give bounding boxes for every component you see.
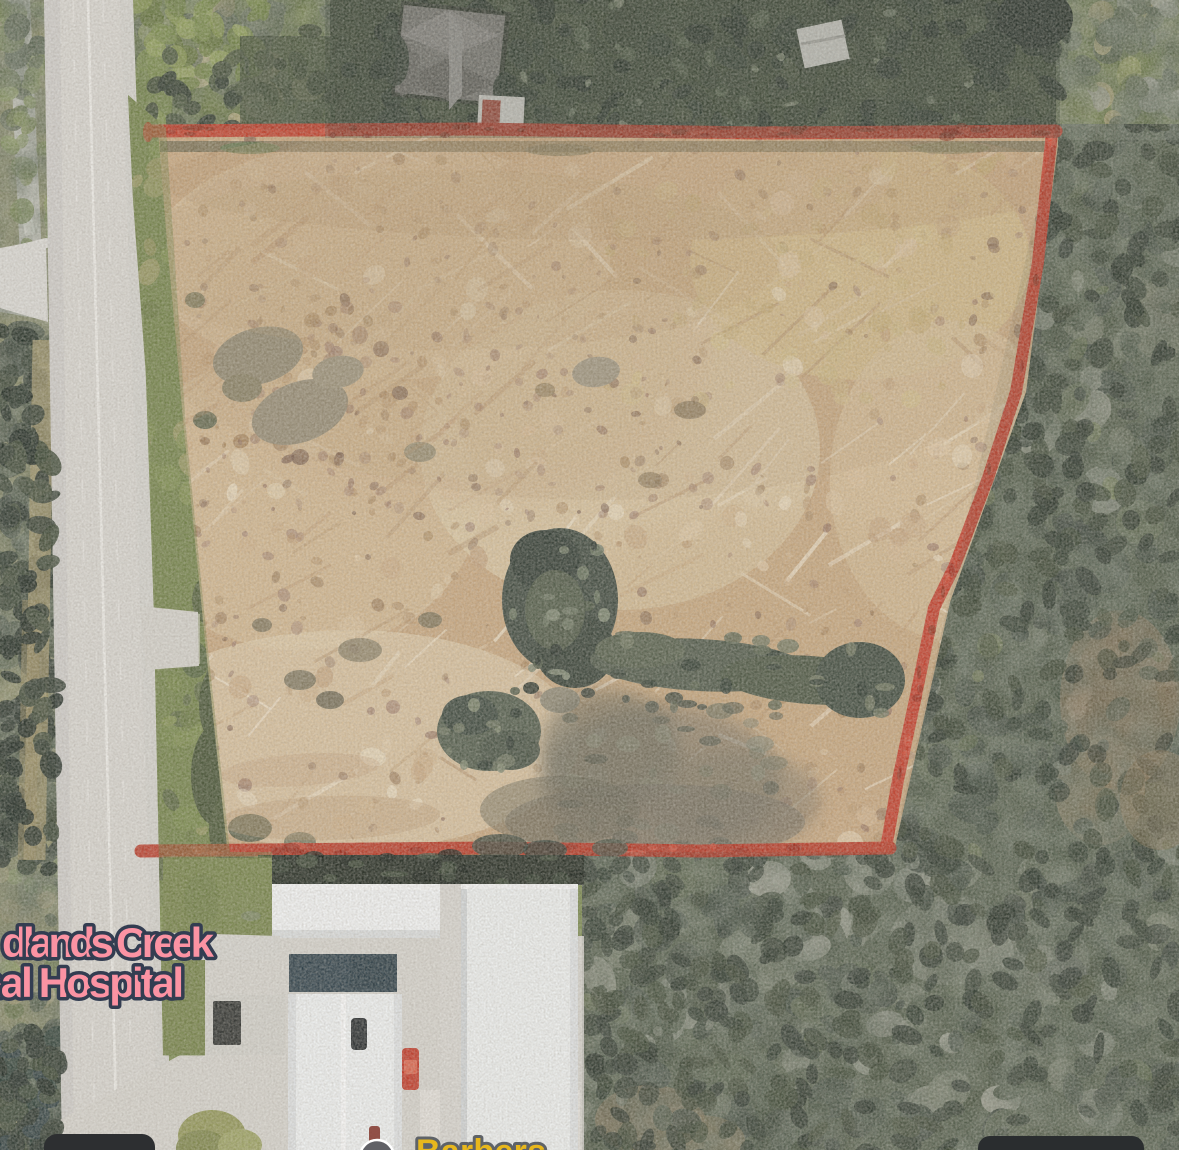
svg-text:Barbers: Barbers (416, 1133, 546, 1150)
svg-text:nal Hospital: nal Hospital (0, 959, 184, 1006)
